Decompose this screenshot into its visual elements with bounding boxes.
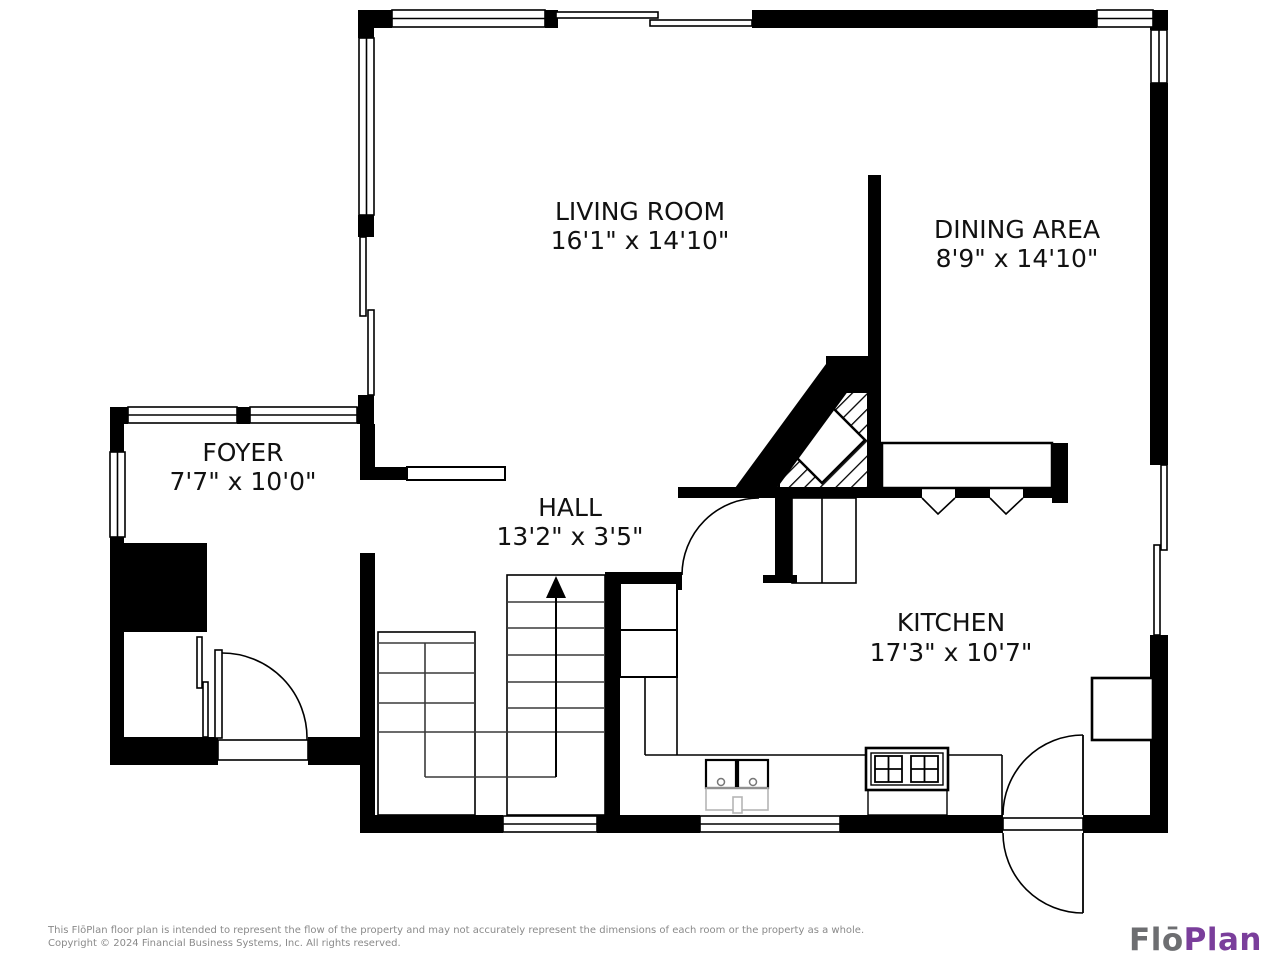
floor-plan: LIVING ROOM 16'1" x 14'10" DINING AREA 8… — [0, 0, 1280, 960]
window-foyer-west — [110, 452, 125, 537]
floplan-logo: FlōPlan — [1129, 922, 1262, 958]
floor-plan-drawing: LIVING ROOM 16'1" x 14'10" DINING AREA 8… — [0, 0, 1280, 960]
window-foyer-top-left — [128, 407, 237, 423]
half-wall — [407, 467, 505, 480]
window-dining-top — [1097, 10, 1153, 27]
floplan-logo-flo: Flō — [1129, 922, 1184, 958]
window-stairs-bottom — [503, 816, 597, 832]
foyer-label: FOYER — [202, 438, 283, 467]
living-room-label: LIVING ROOM — [555, 197, 725, 226]
window-foyer-top-right — [250, 407, 357, 423]
peninsula-counter — [882, 443, 1052, 488]
foyer-dims: 7'7" x 10'0" — [170, 467, 317, 496]
right-wall-appliance — [1092, 678, 1153, 740]
refrigerator — [620, 583, 677, 677]
hall-label: HALL — [538, 493, 602, 522]
dining-area-dims: 8'9" x 14'10" — [936, 244, 1099, 273]
floplan-logo-plan: Plan — [1184, 922, 1262, 958]
hall-dims: 13'2" x 3'5" — [497, 522, 644, 551]
footer-copyright: Copyright © 2024 Financial Business Syst… — [48, 937, 948, 950]
fireplace-chimney-block — [826, 356, 868, 392]
footer: This FlōPlan floor plan is intended to r… — [48, 924, 948, 950]
window-living-west — [359, 38, 374, 215]
window-living-top — [392, 10, 545, 27]
kitchen-label: KITCHEN — [897, 608, 1005, 637]
kitchen-dims: 17'3" x 10'7" — [870, 638, 1033, 667]
window-dining-right — [1151, 30, 1167, 83]
living-room-dims: 16'1" x 14'10" — [551, 226, 730, 255]
footer-disclaimer: This FlōPlan floor plan is intended to r… — [48, 924, 948, 937]
window-kitchen-bottom — [700, 816, 840, 832]
dining-area-label: DINING AREA — [934, 215, 1100, 244]
